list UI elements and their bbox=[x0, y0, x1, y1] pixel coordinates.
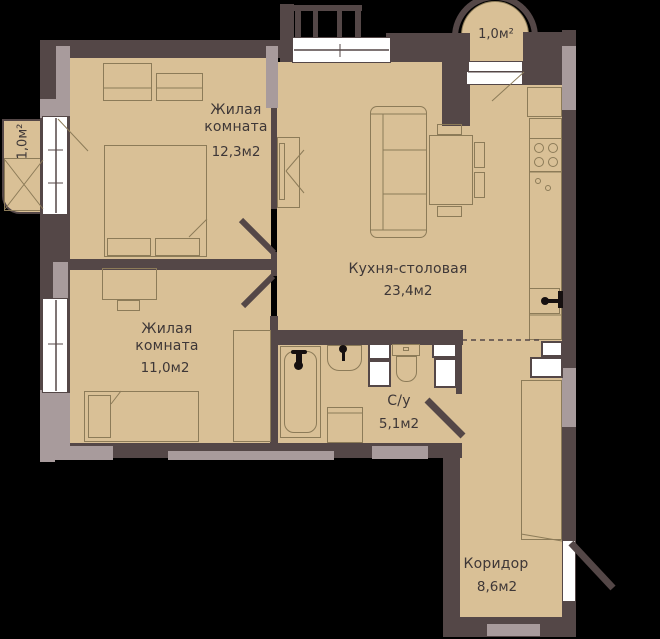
balcony-right-area: 1,0м² bbox=[464, 27, 528, 42]
kitchen-label: Кухня-столовая bbox=[328, 261, 488, 278]
dining-table bbox=[429, 135, 473, 205]
pillar-corridor-bottom bbox=[487, 624, 540, 636]
window-room2 bbox=[42, 298, 68, 393]
pillar-bottom-b bbox=[168, 451, 334, 460]
room2-label: Жилая комната bbox=[107, 321, 227, 354]
wardrobe-corridor bbox=[521, 380, 562, 540]
corridor-area: 8,6м2 bbox=[437, 579, 557, 595]
pillar-divider-top bbox=[266, 46, 278, 108]
french-railing-bar bbox=[294, 5, 362, 11]
wall-top-room1 bbox=[55, 40, 282, 58]
vent-shaft bbox=[368, 360, 391, 387]
bathroom-label: С/у bbox=[369, 393, 429, 410]
corridor-label: Коридор bbox=[436, 556, 556, 573]
window-kitchen-top bbox=[292, 37, 391, 63]
pillar-bottom-c bbox=[372, 446, 428, 459]
pillar-left-top bbox=[56, 46, 70, 116]
entrance-door-opening bbox=[562, 540, 576, 602]
room1-area: 12,3м2 bbox=[176, 144, 296, 160]
balcony-door-room1 bbox=[42, 116, 68, 215]
kitchen-faucet-icon bbox=[558, 291, 563, 308]
pillar-left-bottom bbox=[55, 393, 70, 450]
balcony-door-kitchen bbox=[466, 71, 523, 85]
french-railing-post bbox=[337, 10, 342, 38]
dresser bbox=[103, 63, 152, 101]
vent-shaft bbox=[432, 343, 457, 358]
dresser bbox=[156, 73, 203, 101]
room1-label: Жилая комната bbox=[176, 102, 296, 135]
vent-shaft bbox=[530, 357, 563, 378]
chair bbox=[437, 124, 462, 135]
vent-shaft bbox=[541, 341, 563, 357]
french-railing-post bbox=[295, 10, 301, 38]
pillar-right-mid bbox=[562, 368, 576, 427]
toilet-button bbox=[403, 347, 409, 351]
wall-door-stub bbox=[271, 252, 277, 276]
pillow bbox=[107, 238, 151, 256]
bath-faucet-icon bbox=[294, 361, 303, 370]
pillar-bottom-a bbox=[42, 446, 113, 460]
floor-plan: Жилая комната 12,3м2 Жилая комната 11,0м… bbox=[0, 0, 660, 639]
desk-chair bbox=[117, 300, 140, 311]
fridge bbox=[527, 87, 562, 117]
wall-corridor-left bbox=[443, 455, 460, 625]
sofa bbox=[370, 106, 427, 238]
chair bbox=[474, 142, 485, 168]
chair bbox=[474, 172, 485, 198]
wall-rooms-divider bbox=[55, 259, 277, 270]
wall-right bbox=[562, 30, 576, 623]
room2-area: 11,0м2 bbox=[105, 360, 225, 376]
wardrobe-room2 bbox=[233, 330, 271, 442]
french-railing-post bbox=[313, 10, 318, 38]
stove bbox=[529, 138, 562, 172]
wall-stub-balcony-left bbox=[40, 214, 56, 241]
vent-shaft bbox=[368, 343, 391, 360]
french-railing-post bbox=[355, 10, 361, 38]
bathroom-area: 5,1м2 bbox=[369, 416, 429, 432]
kitchen-area: 23,4м2 bbox=[328, 283, 488, 299]
pillow bbox=[88, 395, 111, 438]
pillar-left-mid bbox=[53, 262, 68, 298]
chair bbox=[437, 206, 462, 217]
vent-shaft bbox=[434, 358, 457, 388]
door-leaf-entrance bbox=[571, 543, 613, 588]
pillow bbox=[155, 238, 200, 256]
basin-faucet-icon bbox=[342, 351, 345, 361]
wall-kitchen-top bbox=[386, 33, 470, 62]
balcony-left-area: 1,0м² bbox=[16, 112, 31, 172]
toilet-bowl bbox=[396, 356, 417, 382]
desk bbox=[102, 268, 157, 300]
pillar-right-top bbox=[562, 46, 576, 110]
washing-machine bbox=[327, 407, 363, 443]
